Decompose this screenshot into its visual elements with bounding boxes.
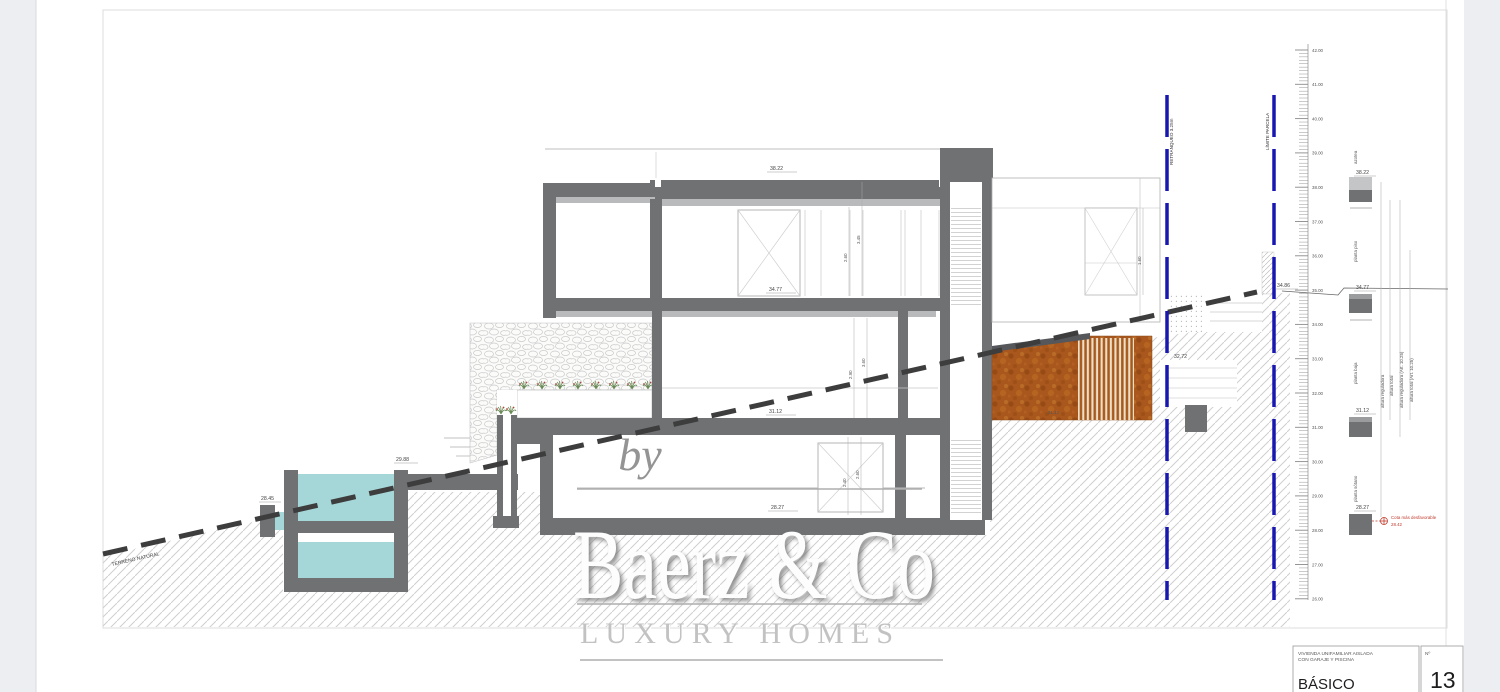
ground-level-text: 31.12 (769, 409, 782, 415)
project-title-line2: CON GARAJE Y PISCINA (1298, 657, 1355, 663)
ruler-label: 42.00 (1312, 48, 1324, 53)
worst-level-value: 28.42 (1391, 522, 1403, 527)
ruler-label: 41.00 (1312, 82, 1324, 87)
upper-level-mark: 34.77 (1356, 285, 1369, 291)
planter (517, 390, 652, 418)
ground-floor-label: planta baja (1353, 362, 1358, 384)
upper-total-height: 3.45 (856, 235, 861, 244)
ruler-label: 38.00 (1312, 185, 1324, 190)
sheet-number-label: Nº (1425, 651, 1430, 657)
height-reg-label: altura reguladora (1380, 374, 1385, 408)
upper-level-text: 34.77 (769, 287, 782, 293)
ground-clear-height: 2.90 (848, 370, 853, 379)
ruler-label: 30.00 (1312, 459, 1324, 464)
height-total-label: altura total (1389, 375, 1394, 396)
watermark-tagline: LUXURY HOMES (580, 617, 905, 650)
project-title-line1: VIVIENDA UNIFAMILIAR AISLADA (1298, 651, 1374, 657)
setback-label: RETRANQUEO 3.25m (1169, 118, 1174, 165)
sheet-number: 13 (1430, 667, 1456, 692)
ruler-label: 39.00 (1312, 151, 1324, 156)
height-total-art-label: altura total (Art. 10.25) (1409, 358, 1414, 402)
section-drawing: 29.88 28.45 38.22 (0, 0, 1500, 692)
phase-label: BÁSICO (1298, 676, 1355, 692)
timber-slats (1078, 338, 1134, 420)
architectural-section-sheet: 29.88 28.45 38.22 (0, 0, 1500, 692)
street-level-text: 34.86 (1277, 283, 1290, 289)
basement-level-mark: 28.27 (1356, 505, 1369, 511)
ruler-label: 37.00 (1312, 219, 1324, 224)
stair-core (940, 148, 993, 520)
ruler-label: 32.00 (1312, 391, 1324, 396)
pool-deck-level: 29.88 (396, 457, 409, 463)
ruler-label: 34.00 (1312, 322, 1324, 327)
basement-clear-height: 2.40 (842, 478, 847, 487)
ruler-label: 31.00 (1312, 425, 1324, 430)
wing-height: 1.60 (1137, 256, 1142, 265)
basement-total-height: 2.60 (855, 470, 860, 479)
ruler-label: 26.00 (1312, 597, 1324, 602)
ruler-label: 27.00 (1312, 562, 1324, 567)
upper-floor-label: planta piso (1353, 240, 1358, 262)
ruler-label: 33.00 (1312, 357, 1324, 362)
ruler-label: 40.00 (1312, 116, 1324, 121)
ruler-label: 28.00 (1312, 528, 1324, 533)
worst-level-label: Cota más desfavorable (1391, 515, 1437, 520)
watermark-by: by (618, 429, 662, 480)
height-reg-art-label: altura reguladora (Art. 10.25) (1399, 351, 1404, 408)
roof-level-text: 38.22 (770, 166, 783, 172)
ruler-label: 29.00 (1312, 494, 1324, 499)
parcel-label: LÍMITE PARCELA (1264, 112, 1270, 150)
terrace-level-text: 32.72 (1174, 354, 1187, 360)
pool-edge-level: 28.45 (261, 496, 274, 502)
ruler-label: 36.00 (1312, 254, 1324, 259)
upper-clear-height: 2.60 (843, 253, 848, 262)
basement-floor-label: planta sótano (1353, 475, 1358, 502)
roof-level-mark: 38.22 (1356, 170, 1369, 176)
ruler-label: 35.00 (1312, 288, 1324, 293)
roof-floor-label: azotea (1353, 150, 1358, 164)
corten-level-text: 31.12 (1048, 410, 1060, 415)
ground-level-mark: 31.12 (1356, 408, 1369, 414)
ground-total-height: 3.60 (861, 358, 866, 367)
right-wing-outline: 1.60 (992, 178, 1160, 322)
title-block: VIVIENDA UNIFAMILIAR AISLADA CON GARAJE … (1293, 646, 1463, 692)
